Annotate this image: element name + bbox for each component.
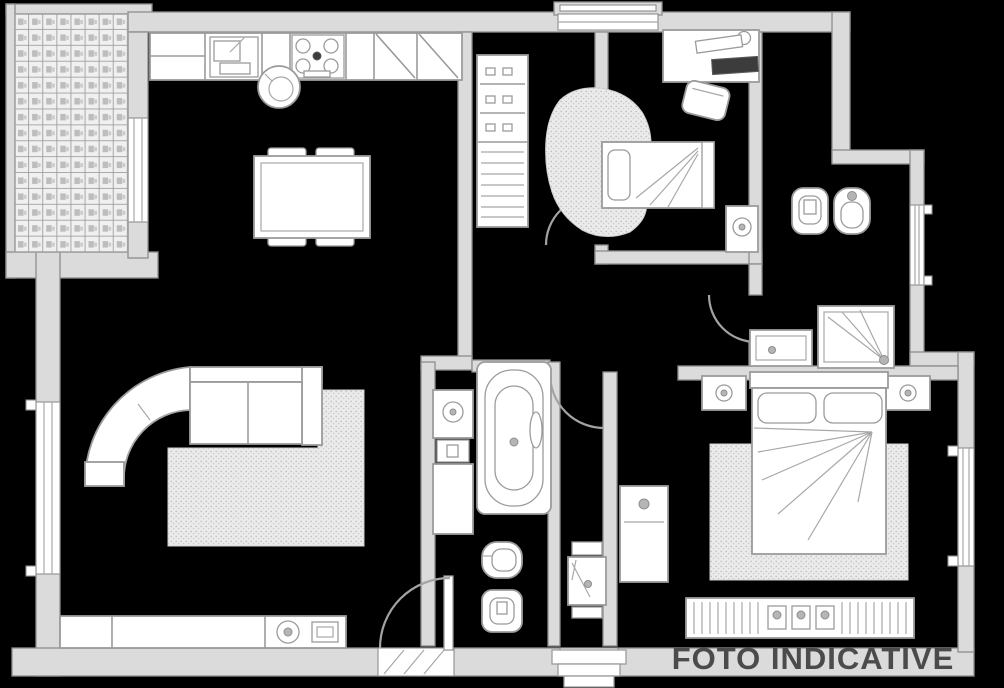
pillow [608,150,630,200]
nightstand-right [886,376,930,410]
bidet-2 [482,542,522,578]
pillow-left [758,393,816,423]
window-kitchen-terrace [128,118,148,222]
floor-plan-svg: FOTO INDICATIVE [0,0,1004,688]
terrace-tiles [15,14,128,252]
stool [258,66,300,108]
watermark-text: FOTO INDICATIVE [672,641,955,676]
washstand-console [568,542,606,618]
desk [663,30,759,82]
kitchen-sink [210,37,258,77]
closet [477,55,528,227]
double-bed [750,372,888,554]
tv-sideboard [60,616,346,648]
kitchen-hob [292,35,344,78]
pillow-right [824,393,882,423]
toilet [792,188,828,234]
bathtub-faucet [530,412,542,448]
single-bed [602,142,714,208]
dining-table [254,148,370,246]
vanity-washbasin [433,390,473,534]
floor-plan-image: FOTO INDICATIVE [0,0,1004,688]
bedroom-cabinet [620,486,668,582]
radiator [686,598,914,638]
flower-table [726,206,758,252]
toilet-2 [482,590,522,632]
shower [818,306,894,368]
window-top [554,2,662,30]
bath-cabinet [750,330,812,366]
terrace [15,14,128,252]
bidet [834,188,870,234]
nightstand-left [702,376,746,410]
bathtub [477,362,551,514]
